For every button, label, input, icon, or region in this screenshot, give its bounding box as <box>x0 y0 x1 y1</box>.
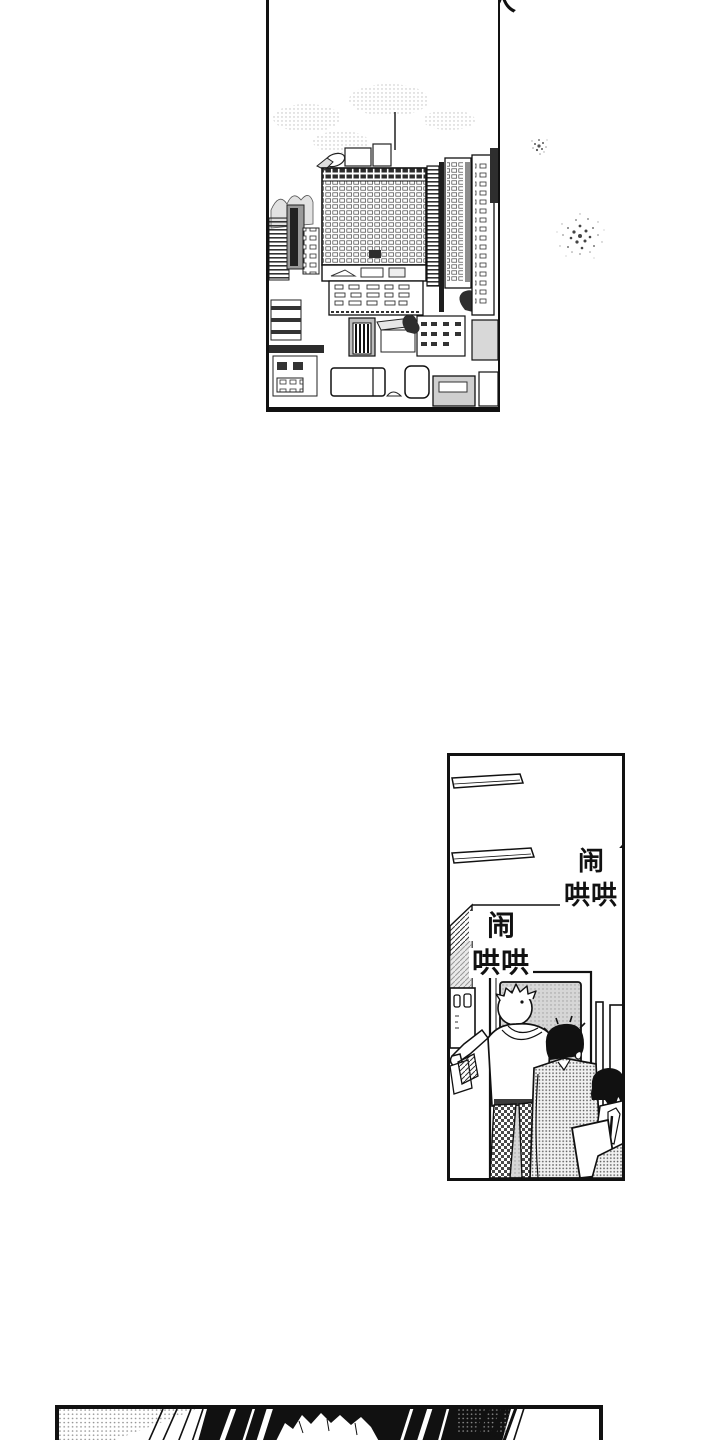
left-buildings <box>269 195 324 396</box>
corner-tone <box>59 1409 197 1440</box>
mid-rise <box>329 281 423 315</box>
city-artwork <box>269 0 498 407</box>
sfx-noisy-right: 闹 哄哄 <box>560 848 622 910</box>
panel-face-closeup <box>55 1405 603 1440</box>
sfx-text: 闹 <box>469 911 533 941</box>
closeup-artwork <box>59 1409 599 1440</box>
tone-splatter-small-icon <box>527 134 553 160</box>
manga-page: 确定恋人 <box>0 0 720 1440</box>
street-vehicles <box>331 366 498 406</box>
sky-clouds <box>273 84 475 153</box>
sfx-text: 闹 <box>560 848 622 876</box>
sfx-text: 哄哄 <box>560 882 622 910</box>
panel-city <box>266 0 500 412</box>
tone-splatter-large-icon <box>550 204 610 266</box>
sfx-noisy-left: 闹 哄哄 <box>469 911 533 978</box>
sfx-text: 哄哄 <box>469 948 533 978</box>
